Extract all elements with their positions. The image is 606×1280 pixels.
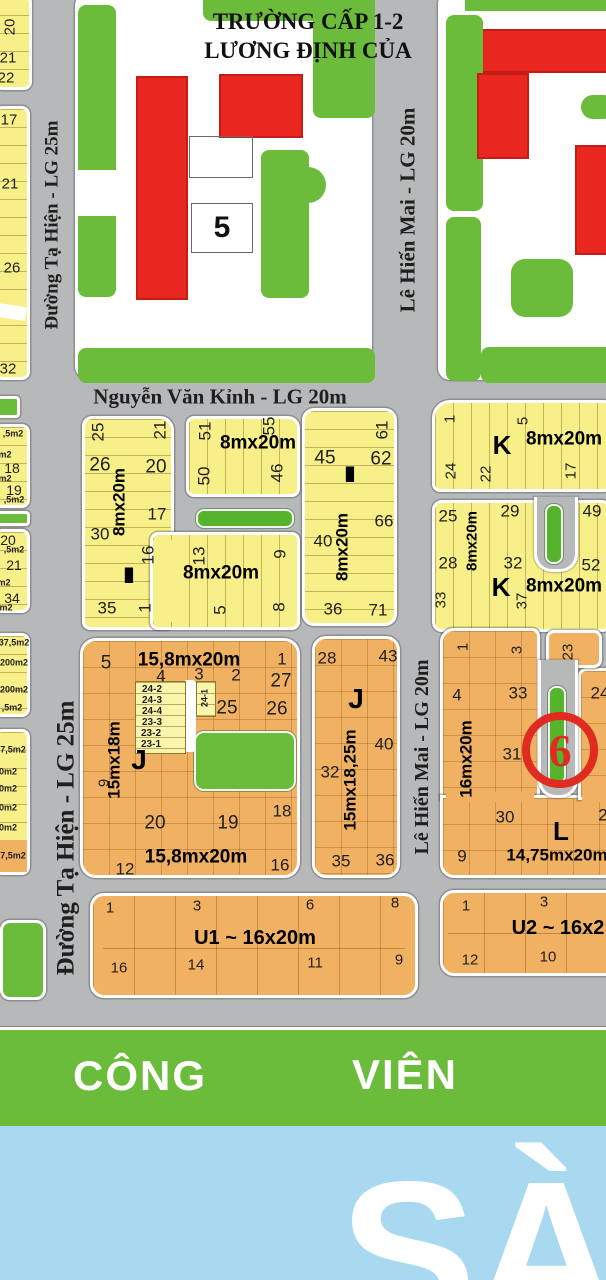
lot-number: 10 <box>540 950 557 965</box>
dimension-label: 15,8mx20m <box>145 848 247 867</box>
lot-number: 27 <box>270 672 291 691</box>
green-strip-left <box>0 511 30 526</box>
lot-number: 24-4 <box>142 707 162 717</box>
lot-number: 22 <box>0 71 14 86</box>
lot-number: 33 <box>434 592 449 609</box>
block-letter: K <box>493 432 512 458</box>
lot-number: 26 <box>89 456 110 475</box>
lot-number: 3 <box>194 666 203 683</box>
lot-number: 18 <box>273 803 292 820</box>
lot-number: 40 <box>375 736 394 753</box>
lot-number: 33 <box>509 685 528 702</box>
lot-number: 8 <box>271 602 288 611</box>
location-badge-number: 6 <box>549 724 572 777</box>
area-label: ,5m2 <box>4 546 25 555</box>
block-letter: L <box>553 818 569 844</box>
lot-number: 17 <box>1 113 18 128</box>
lot-number: 23 <box>561 644 576 661</box>
school-entrance-gap <box>78 170 116 216</box>
lot-number: 61 <box>374 421 391 440</box>
block-letter: J <box>348 685 364 713</box>
lot-number: 45 <box>314 449 335 468</box>
lot-number: 21 <box>0 51 16 66</box>
school-title: TRƯỜNG CẤP 1-2 LƯƠNG ĐỊNH CỦA <box>183 7 433 65</box>
right-building-red-3 <box>575 145 606 255</box>
lot-number: 1 <box>456 643 471 651</box>
right-green-frame-left2 <box>446 217 481 381</box>
dimension-label: 8mx20m <box>334 513 351 581</box>
lot-number: 26 <box>266 700 287 719</box>
lot-number: 35 <box>98 600 117 617</box>
area-label: 0m2 <box>0 824 17 833</box>
area-label: 0m2 <box>0 804 17 813</box>
school-building-5: 5 <box>191 203 253 253</box>
lot-number: 36 <box>376 852 395 869</box>
lot-number: 22 <box>479 466 494 483</box>
block-L-seam <box>582 792 606 802</box>
school-building-red-2 <box>219 74 303 138</box>
lot-number: 4 <box>452 687 461 704</box>
lot-number: 3 <box>540 895 548 910</box>
lot-number: 25 <box>216 699 237 718</box>
right-green-top <box>465 0 606 11</box>
park-band: CÔNG VIÊN <box>0 1027 606 1128</box>
dimension-label: U2 ~ 16x2 <box>512 918 605 938</box>
lot-number: 23-2 <box>141 729 161 739</box>
lot-number: 24-1 <box>201 689 210 707</box>
school-green-bump <box>290 167 326 203</box>
area-label: m2 <box>0 451 12 460</box>
lot-number: 12 <box>116 861 135 878</box>
lot-number: 5 <box>101 654 112 673</box>
lot-number: 51 <box>197 422 214 441</box>
lot-number: 50 <box>196 467 213 486</box>
lot-number: 36 <box>324 601 343 618</box>
lot-number: 21 <box>152 421 169 440</box>
lot-number: 1 <box>443 415 458 423</box>
area-label: 0m2 <box>0 768 17 777</box>
lot-number: 3 <box>193 899 201 914</box>
lot-number: 32 <box>0 362 16 377</box>
lot-number: 66 <box>375 513 394 530</box>
block-letter: J <box>131 746 147 774</box>
lot-number: 2 <box>598 807 606 824</box>
lot-number: 28 <box>318 650 337 667</box>
street-label: Đường Tạ Hiện - LG 25m <box>43 121 62 330</box>
lot-number: 1 <box>277 651 286 668</box>
street-label: Nguyễn Văn Kỉnh - LG 20m <box>93 387 346 408</box>
park-inside-block <box>194 731 296 791</box>
right-green-bottom <box>481 347 606 383</box>
lot-number: 8 <box>391 896 399 911</box>
school-building-number: 5 <box>192 204 252 252</box>
area-label: ,5m2 <box>3 430 24 439</box>
block-letter: K <box>492 574 511 600</box>
lot-number: 1 <box>137 603 154 612</box>
area-label: 37,5m2 <box>0 639 29 648</box>
street-median-green <box>196 509 294 528</box>
lot-number: 32 <box>504 555 523 572</box>
lot-number: 43 <box>379 648 398 665</box>
lot-number: 20 <box>144 814 165 833</box>
lot-number: 49 <box>583 503 602 520</box>
lot-number: 29 <box>501 503 520 520</box>
area-label: ,5m2 <box>4 496 25 505</box>
dimension-label: 8mx20m <box>183 564 259 583</box>
park-label-word1: CÔNG <box>73 1052 207 1100</box>
lot-number: 23-3 <box>142 718 162 728</box>
right-building-red-band <box>471 29 606 73</box>
block-letter: I <box>342 464 358 486</box>
lot-number: 3 <box>510 646 525 654</box>
lot-number: 17 <box>564 463 579 480</box>
dimension-label: 16mx20m <box>458 720 475 798</box>
lot-number: 30 <box>91 526 110 543</box>
lot-number: 71 <box>369 602 388 619</box>
school-title-line2: LƯƠNG ĐỊNH CỦA <box>183 36 433 65</box>
right-compound <box>438 0 606 380</box>
right-green-pill <box>581 95 606 119</box>
lot-number: 5 <box>516 417 531 425</box>
lot-number: 24 <box>444 463 459 480</box>
school-compound: 5 TRƯỜNG CẤP 1-2 LƯƠNG ĐỊNH CỦA <box>75 0 372 380</box>
lot-number: 46 <box>269 464 286 483</box>
lot-number: 16 <box>111 961 128 976</box>
school-building-red-1 <box>136 76 188 300</box>
lot-number: 35 <box>332 853 351 870</box>
lot-number: 9 <box>272 549 289 558</box>
area-label: ,5m2 <box>2 704 23 713</box>
dimension-label: 8mx20m <box>465 511 480 571</box>
lot-number: 9 <box>457 848 466 865</box>
lot-number: 19 <box>217 814 238 833</box>
lot-number: 32 <box>321 764 340 781</box>
lot-number: 30 <box>496 809 515 826</box>
dimension-label: 14,75mx20m <box>506 847 606 864</box>
lot-number: 52 <box>582 557 601 574</box>
lot-number: 37 <box>515 593 530 610</box>
lot-number: 31 <box>503 746 522 763</box>
dimension-label: 8mx20m <box>220 434 296 453</box>
lot-number: 1 <box>462 899 470 914</box>
right-green-square <box>511 259 573 317</box>
green-sliver <box>0 396 20 418</box>
lot-number: 40 <box>314 533 333 550</box>
lot-number: 11 <box>307 956 323 971</box>
dimension-label: 8mx20m <box>526 577 602 596</box>
lot-number: 16 <box>140 546 157 565</box>
green-lot-left <box>0 920 46 1000</box>
area-label: 200m2 <box>0 686 28 695</box>
street-median-green <box>545 504 563 564</box>
lot-number: 2 <box>231 667 240 684</box>
area-label: 7,5m2 <box>0 746 26 755</box>
park-label-word2: VIÊN <box>352 1051 458 1099</box>
lot-number: 9 <box>395 953 403 968</box>
lot-number: 21 <box>2 177 19 192</box>
lot-number: 17 <box>148 506 167 523</box>
lot-number: 62 <box>370 450 391 469</box>
block-letter: I <box>121 565 137 587</box>
dimension-label: 8mx20m <box>526 430 602 449</box>
dimension-label: 8mx20m <box>111 468 128 536</box>
lot-number: 6 <box>306 898 314 913</box>
lot-number: 24 <box>591 685 606 702</box>
dimension-label: U1 ~ 16x20m <box>194 928 316 948</box>
lot-number: 9 <box>97 779 112 787</box>
area-label: m2 <box>0 579 11 588</box>
school-green-frame-bottom <box>78 348 375 383</box>
street-label: Lê Hiến Mai - LG 20m <box>412 660 432 855</box>
school-green-frame-left <box>78 5 116 297</box>
lot-block-left-2 <box>0 106 30 380</box>
lot-number: 26 <box>4 261 21 276</box>
lot-number: 25 <box>439 508 458 525</box>
dimension-label: 15mx18,25m <box>342 729 359 830</box>
school-title-line1: TRƯỜNG CẤP 1-2 <box>183 7 433 36</box>
lot-number: 5 <box>212 605 229 614</box>
lot-number: 21 <box>6 558 22 572</box>
lot-number: 12 <box>462 953 479 968</box>
area-label: 0m2 <box>0 785 17 794</box>
block-L-bottom <box>440 795 606 878</box>
river: SÀ <box>0 1126 606 1280</box>
dimension-label: 15,8mx20m <box>138 651 240 670</box>
lot-number: 20 <box>3 19 18 36</box>
school-building-outline <box>189 136 253 178</box>
river-label: SÀ <box>340 1136 606 1280</box>
lot-number: 24-3 <box>142 696 162 706</box>
subdivision-map: 5 TRƯỜNG CẤP 1-2 LƯƠNG ĐỊNH CỦA <box>0 0 606 1280</box>
area-label: 200m2 <box>0 659 28 668</box>
lot-number: 14 <box>188 958 205 973</box>
lot-number: 28 <box>439 555 458 572</box>
lot-number: 24-2 <box>142 685 162 695</box>
lot-number: 1 <box>106 901 114 916</box>
lot-number: 25 <box>90 423 107 442</box>
lot-number: 20 <box>145 458 166 477</box>
lot-number: 4 <box>156 668 165 685</box>
right-building-red-2 <box>477 73 529 159</box>
area-label: 7,5m2 <box>0 852 26 861</box>
street-label: Đường Tạ Hiện - LG 25m <box>54 701 79 976</box>
lot-number: 16 <box>271 857 290 874</box>
location-badge-circle: 6 <box>522 712 598 788</box>
area-label: m2 <box>0 604 13 613</box>
street-label: Lê Hiến Mai - LG 20m <box>398 108 419 313</box>
